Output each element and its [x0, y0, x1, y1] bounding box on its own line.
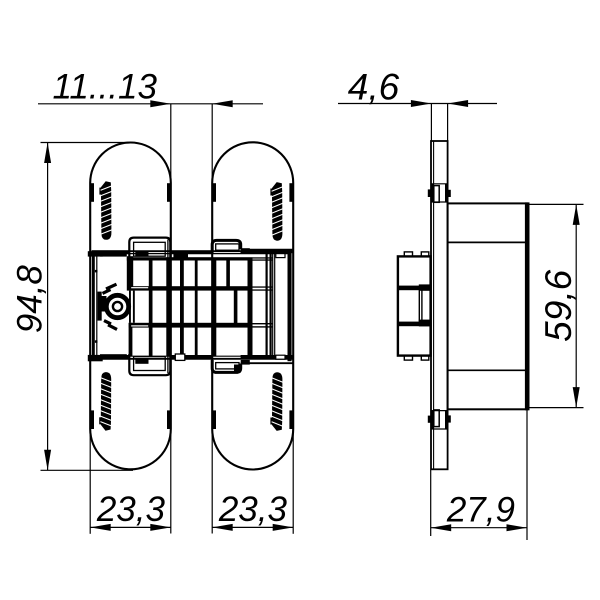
svg-text:23,3: 23,3	[96, 490, 166, 529]
svg-text:27,9: 27,9	[446, 490, 515, 529]
svg-text:94,8: 94,8	[10, 265, 49, 334]
svg-text:23,3: 23,3	[218, 490, 288, 529]
svg-text:11...13: 11...13	[52, 67, 157, 106]
svg-text:4,6: 4,6	[348, 67, 400, 108]
svg-text:59,6: 59,6	[538, 269, 579, 341]
